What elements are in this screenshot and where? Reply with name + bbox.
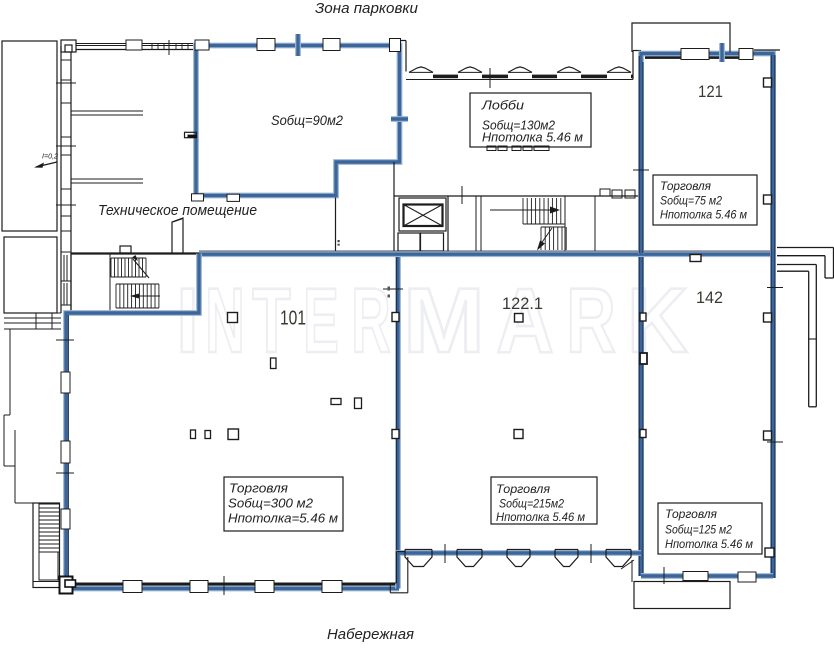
svg-text:Техническое помещение: Техническое помещение — [98, 203, 257, 219]
svg-text:N: N — [205, 270, 245, 372]
svg-text:K: K — [627, 270, 688, 372]
svg-text:Лобби: Лобби — [481, 98, 524, 113]
svg-text:Sобщ=300 м2: Sобщ=300 м2 — [228, 496, 314, 511]
svg-text:R: R — [351, 270, 391, 372]
svg-text:Sобщ=215м2: Sобщ=215м2 — [499, 497, 564, 511]
svg-text:Hпотолка 5.46 м: Hпотолка 5.46 м — [665, 537, 753, 551]
svg-text:I: I — [176, 270, 199, 372]
svg-text:Торговля: Торговля — [665, 507, 718, 521]
svg-text:I=0,2: I=0,2 — [42, 154, 58, 161]
svg-text:Sобщ=125 м2: Sобщ=125 м2 — [665, 523, 732, 537]
svg-text:Hпотолка 5.46 м: Hпотолка 5.46 м — [482, 131, 583, 145]
svg-text:101: 101 — [280, 308, 306, 330]
svg-text:R: R — [566, 270, 616, 372]
svg-text:Набережная: Набережная — [327, 626, 414, 643]
svg-text:Hпотолка 5.46 м: Hпотолка 5.46 м — [660, 208, 747, 222]
svg-text:Торговля: Торговля — [229, 481, 288, 496]
svg-text:122.1: 122.1 — [502, 295, 543, 313]
svg-text:Sобщ=90м2: Sобщ=90м2 — [271, 113, 343, 128]
svg-text:Hпотолка=5.46 м: Hпотолка=5.46 м — [228, 511, 338, 526]
svg-text:Торговля: Торговля — [496, 482, 551, 496]
svg-text:Hпотолка 5.46 м: Hпотолка 5.46 м — [496, 510, 585, 524]
svg-text:Торговля: Торговля — [660, 179, 712, 193]
svg-text:142: 142 — [696, 289, 723, 307]
svg-text:Зона парковки: Зона парковки — [315, 1, 418, 17]
svg-text:121: 121 — [698, 82, 723, 101]
svg-text:Sобщ=75 м2: Sобщ=75 м2 — [660, 194, 722, 208]
svg-text:E: E — [303, 270, 339, 372]
svg-text:M: M — [403, 270, 485, 372]
svg-text:A: A — [496, 270, 554, 372]
